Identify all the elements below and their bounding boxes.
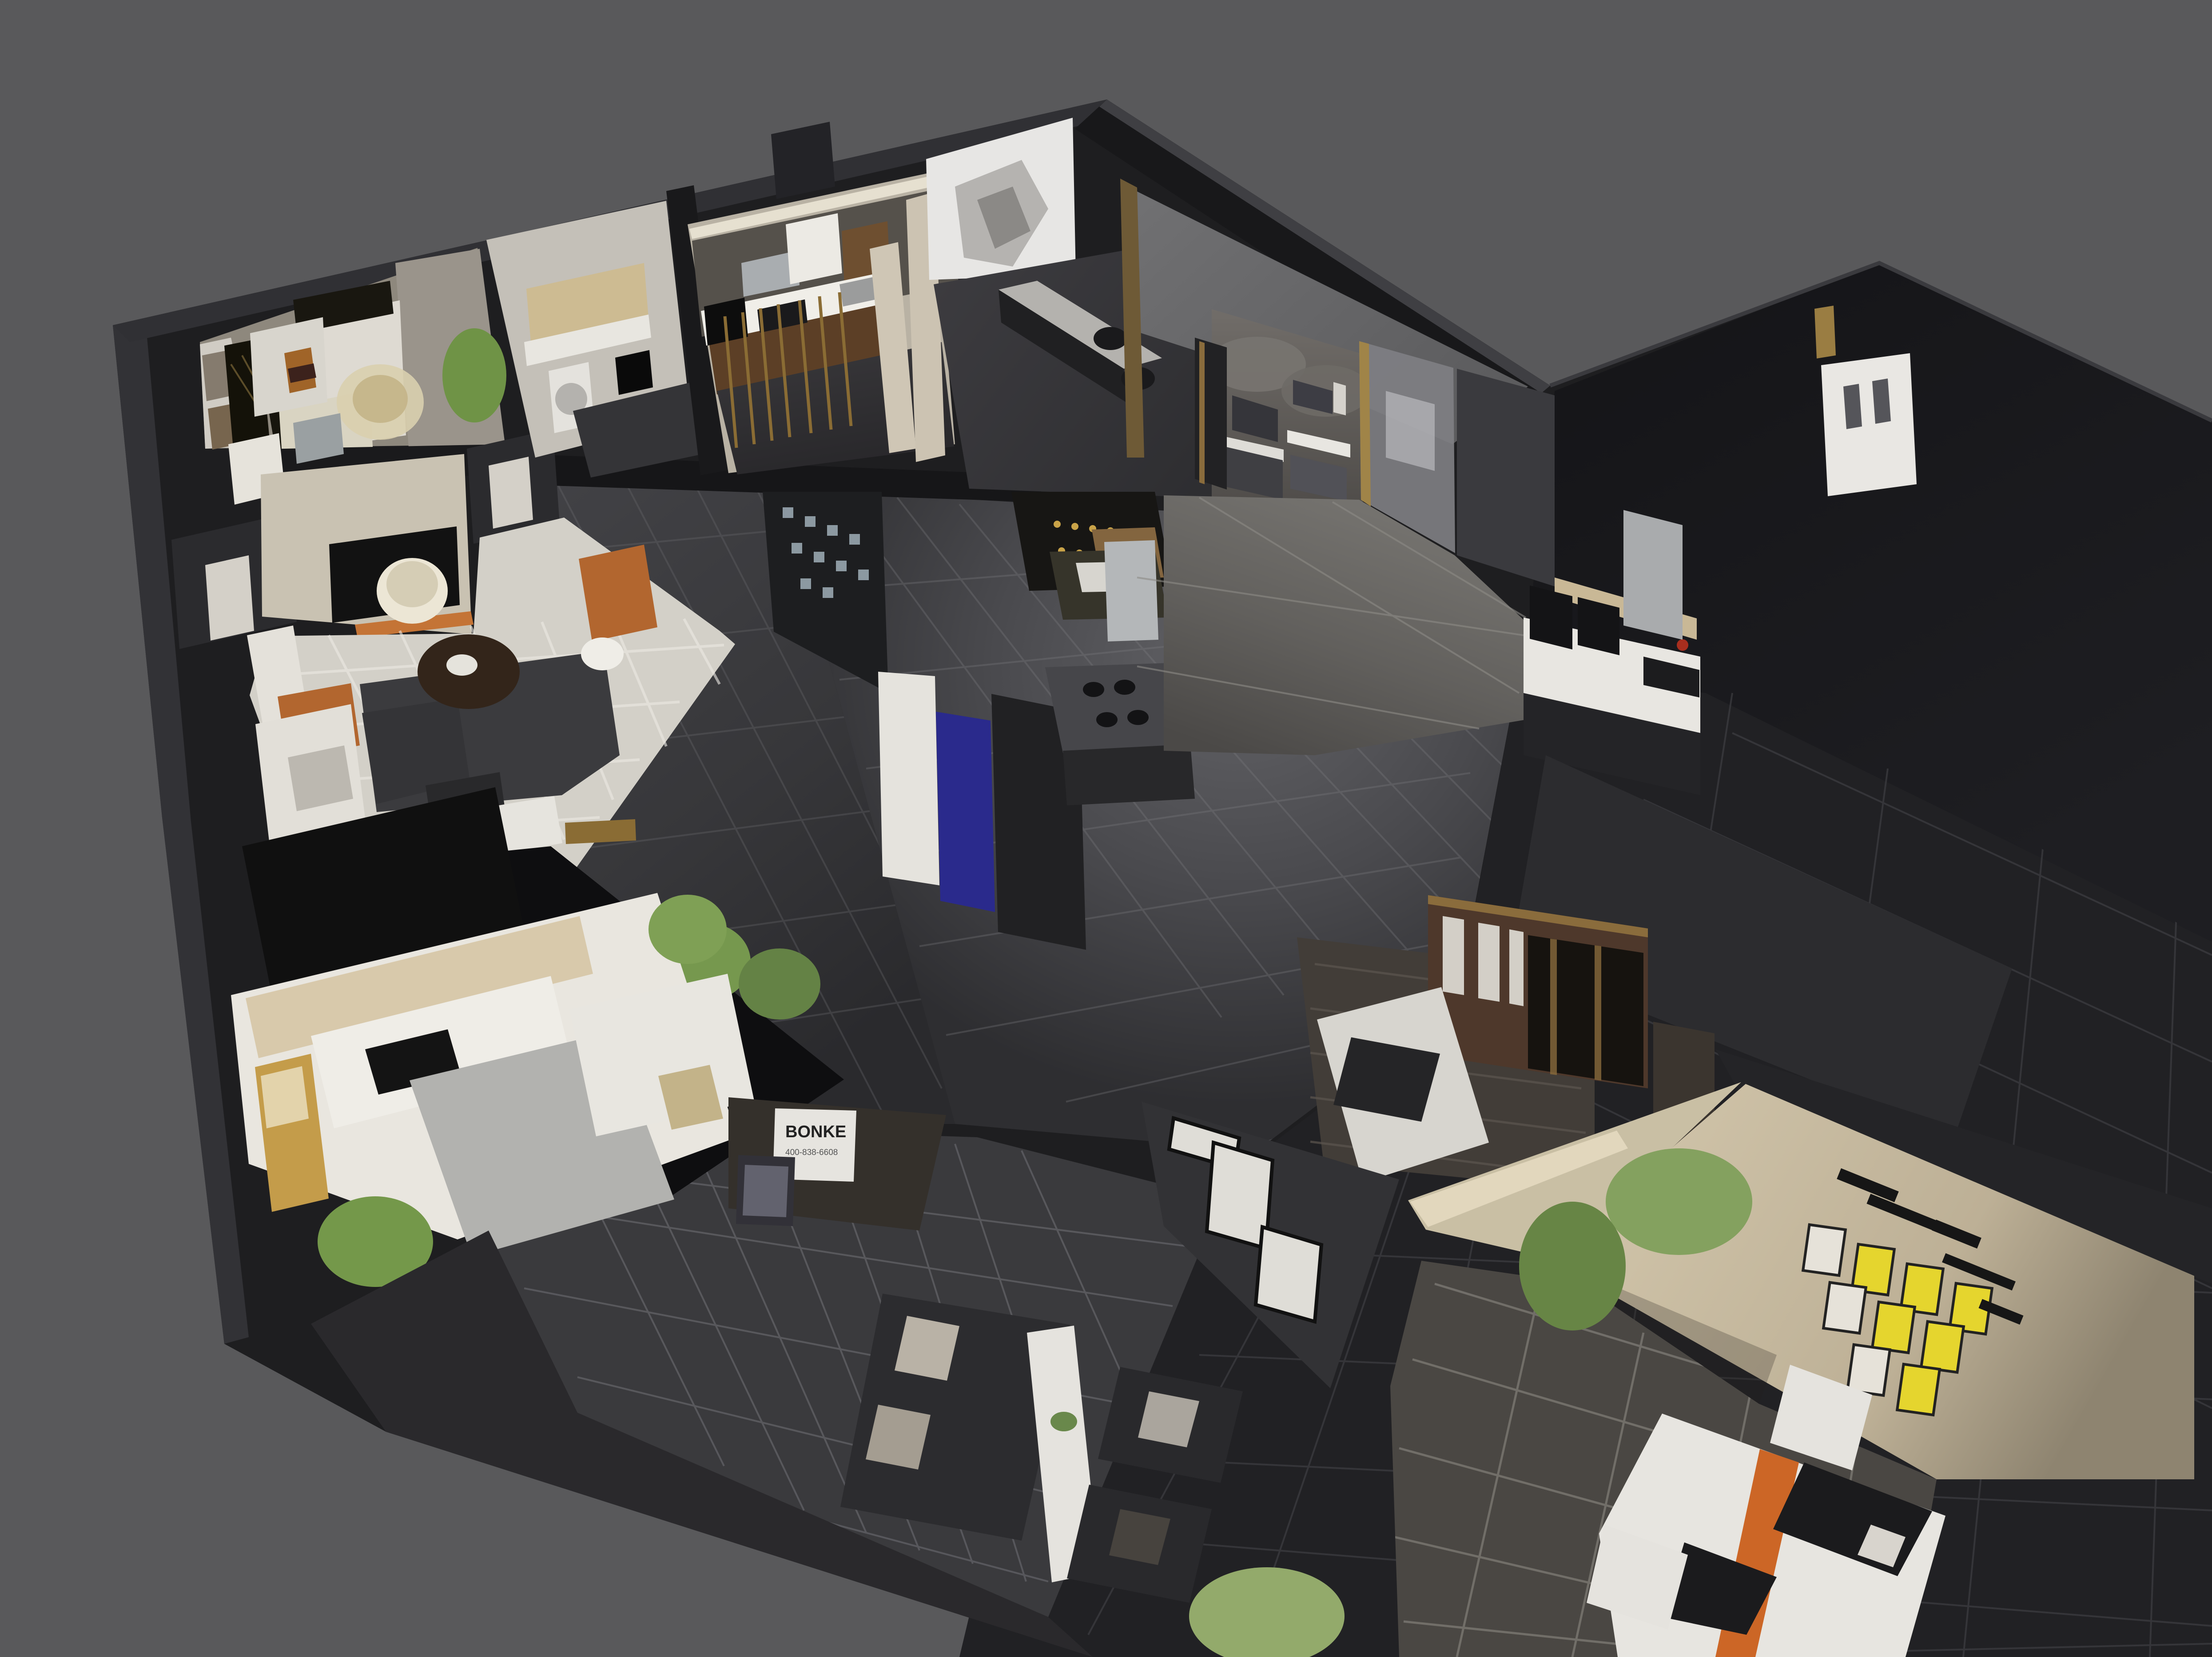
svg-text:BONKE: BONKE [785, 1123, 846, 1141]
svg-text:400-838-6608: 400-838-6608 [785, 1148, 838, 1157]
